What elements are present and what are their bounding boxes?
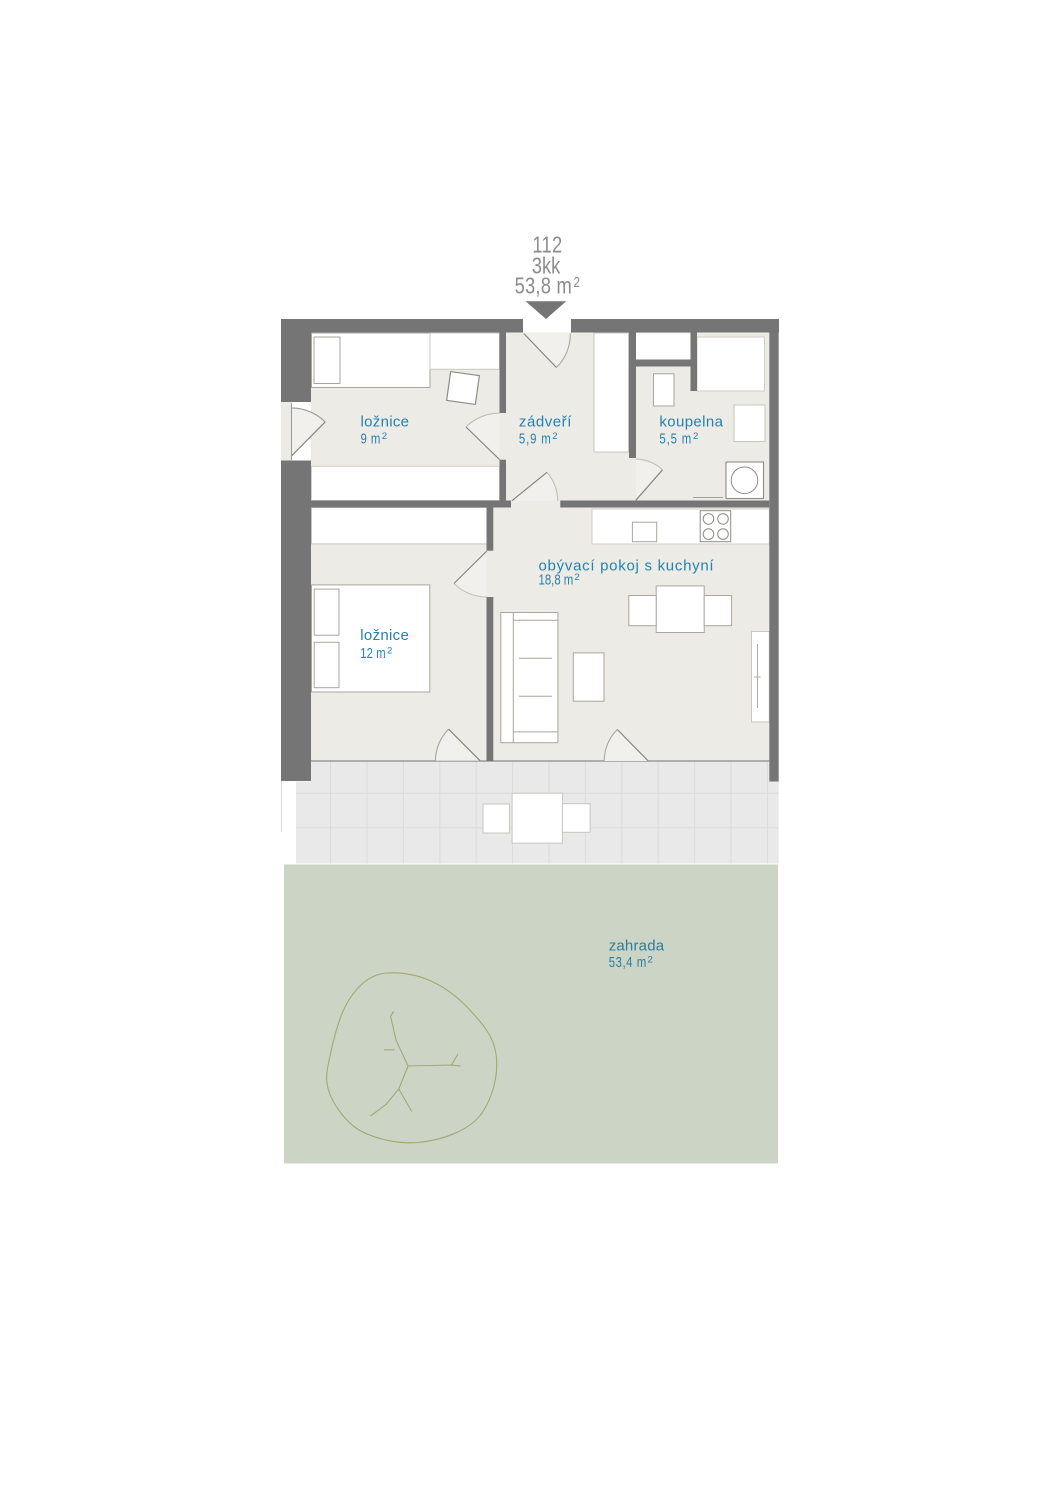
svg-text:9 m: 9 m: [361, 430, 381, 447]
svg-text:2: 2: [693, 431, 698, 442]
svg-text:53,4 m: 53,4 m: [609, 954, 647, 971]
svg-text:ložnice: ložnice: [361, 414, 410, 431]
svg-text:53,8 m: 53,8 m: [515, 273, 572, 299]
svg-text:zádveří: zádveří: [519, 414, 572, 431]
svg-text:2: 2: [574, 274, 581, 291]
svg-text:12 m: 12 m: [360, 645, 385, 662]
svg-text:koupelna: koupelna: [659, 414, 723, 431]
svg-text:2: 2: [574, 572, 579, 583]
svg-text:ložnice: ložnice: [360, 627, 409, 644]
svg-text:2: 2: [552, 431, 557, 442]
svg-text:2: 2: [648, 955, 653, 966]
svg-text:18,8 m: 18,8 m: [539, 571, 574, 588]
svg-text:5,9 m: 5,9 m: [519, 430, 552, 447]
svg-text:zahrada: zahrada: [609, 938, 665, 955]
svg-text:2: 2: [382, 431, 387, 442]
svg-text:5,5 m: 5,5 m: [659, 430, 692, 447]
svg-text:2: 2: [387, 646, 392, 657]
